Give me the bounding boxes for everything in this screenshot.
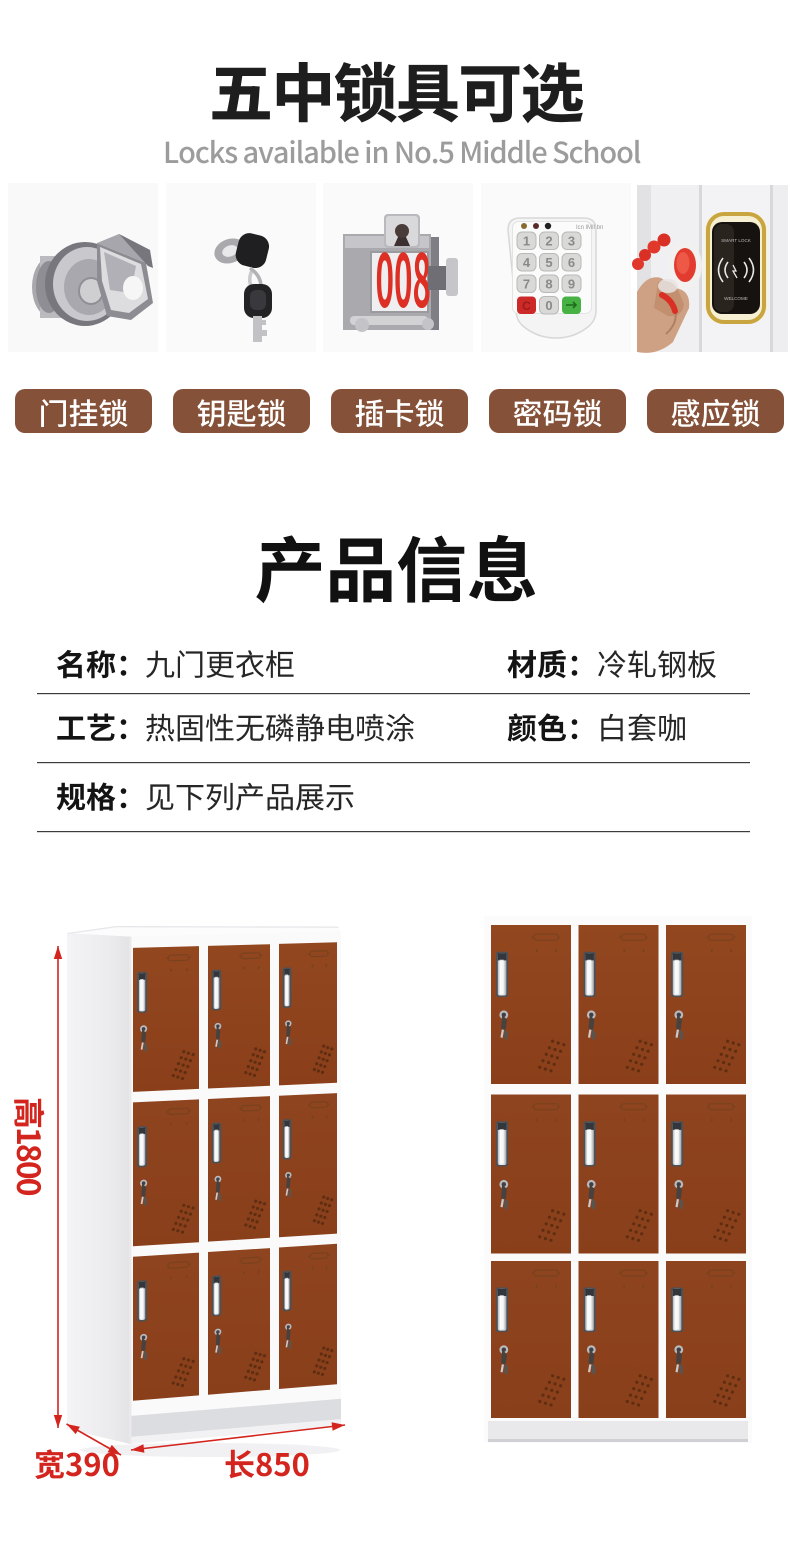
svg-text:9: 9 [568, 277, 575, 292]
svg-text:5: 5 [545, 255, 552, 270]
svg-text:6: 6 [568, 255, 575, 270]
svg-text:SMART LOCK: SMART LOCK [721, 238, 752, 243]
svg-text:8: 8 [545, 277, 552, 292]
svg-text:4: 4 [523, 255, 531, 270]
svg-text:WELCOME: WELCOME [724, 296, 748, 301]
svg-text:3: 3 [568, 234, 575, 249]
svg-text:2: 2 [545, 234, 552, 249]
svg-text:C: C [522, 299, 531, 313]
svg-text:Icn lMIl bn: Icn lMIl bn [576, 225, 603, 231]
svg-text:7: 7 [523, 277, 530, 292]
svg-text:1: 1 [523, 234, 530, 249]
svg-text:0: 0 [545, 298, 552, 313]
